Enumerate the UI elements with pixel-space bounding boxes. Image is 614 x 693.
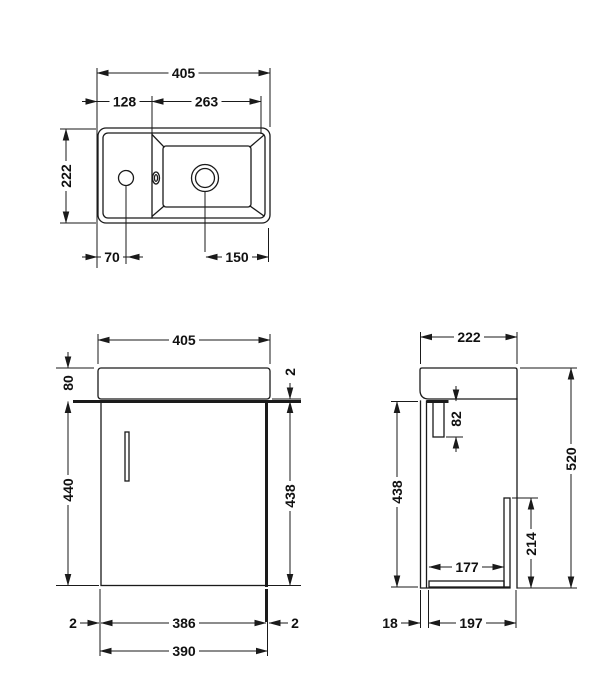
overflow-inner (154, 175, 157, 182)
side-dim-carcass-depth: 197 (459, 615, 483, 631)
plan-extension-lines (60, 68, 270, 268)
bottom-shelf (429, 581, 504, 587)
front-dim-cabinet-width: 390 (172, 643, 196, 659)
side-dim-overall-depth: 222 (457, 329, 481, 345)
bowl-chamfer-tr (250, 135, 264, 147)
bowl-base (163, 146, 251, 207)
side-dim-door-thickness: 18 (382, 615, 398, 631)
plan-dim-overall-width: 405 (172, 65, 196, 81)
back-panel (504, 498, 510, 587)
side-extension-lines (391, 332, 577, 628)
basin-side-profile (420, 368, 517, 399)
side-dim-rail-drop: 82 (448, 411, 464, 427)
front-dim-door-width: 386 (172, 615, 196, 631)
basin-outline (98, 128, 270, 223)
bowl-chamfer-br (250, 206, 264, 216)
side-dim-back-panel-height: 214 (523, 532, 539, 556)
side-dim-overall-height: 520 (563, 447, 579, 471)
plan-dim-overall-depth: 222 (58, 164, 74, 188)
side-dim-door-height: 438 (389, 480, 405, 504)
side-view: 222 82 438 520 214 177 18 197 (379, 329, 579, 631)
plan-geometry (98, 128, 270, 223)
front-dim-basin-height: 80 (60, 375, 76, 391)
bowl-chamfer-bl (153, 206, 165, 216)
front-dim-door-top-gap: 2 (282, 368, 298, 376)
basin-front-profile (98, 368, 270, 399)
door-handle (125, 432, 129, 481)
bowl-chamfer-tl (153, 135, 165, 147)
waste-inner (196, 169, 215, 188)
front-dim-overall-width: 405 (172, 332, 196, 348)
cabinet-front (101, 402, 267, 586)
front-dim-door-height: 438 (282, 484, 298, 508)
plan-dim-left-section: 128 (113, 94, 137, 110)
tap-hole (119, 171, 134, 186)
front-dimension-labels: 405 80 440 2 438 2 386 2 390 (60, 332, 301, 659)
vanity-unit-dimension-drawing: 405 128 263 222 70 150 (0, 0, 614, 693)
plan-dim-tap-hole-offset: 70 (104, 249, 120, 265)
front-view: 405 80 440 2 438 2 386 2 390 (56, 332, 301, 659)
front-dim-cabinet-height: 440 (60, 478, 76, 502)
technical-drawing-canvas: 405 128 263 222 70 150 (0, 0, 614, 693)
hanging-rail (433, 402, 444, 438)
front-dim-right-gap: 2 (291, 615, 299, 631)
overflow-outer (153, 172, 160, 184)
plan-dimension-labels: 405 128 263 222 70 150 (58, 65, 252, 265)
side-geometry (420, 368, 517, 588)
side-dimension-lines (397, 337, 571, 623)
front-extension-lines (56, 334, 301, 656)
side-dimension-labels: 222 82 438 520 214 177 18 197 (379, 329, 579, 631)
plan-dim-bowl-width: 263 (195, 94, 219, 110)
front-dim-left-gap: 2 (69, 615, 77, 631)
side-dim-internal-depth: 177 (455, 559, 479, 575)
plan-view: 405 128 263 222 70 150 (58, 65, 270, 268)
plan-dim-waste-offset: 150 (225, 249, 249, 265)
front-geometry (98, 368, 270, 586)
